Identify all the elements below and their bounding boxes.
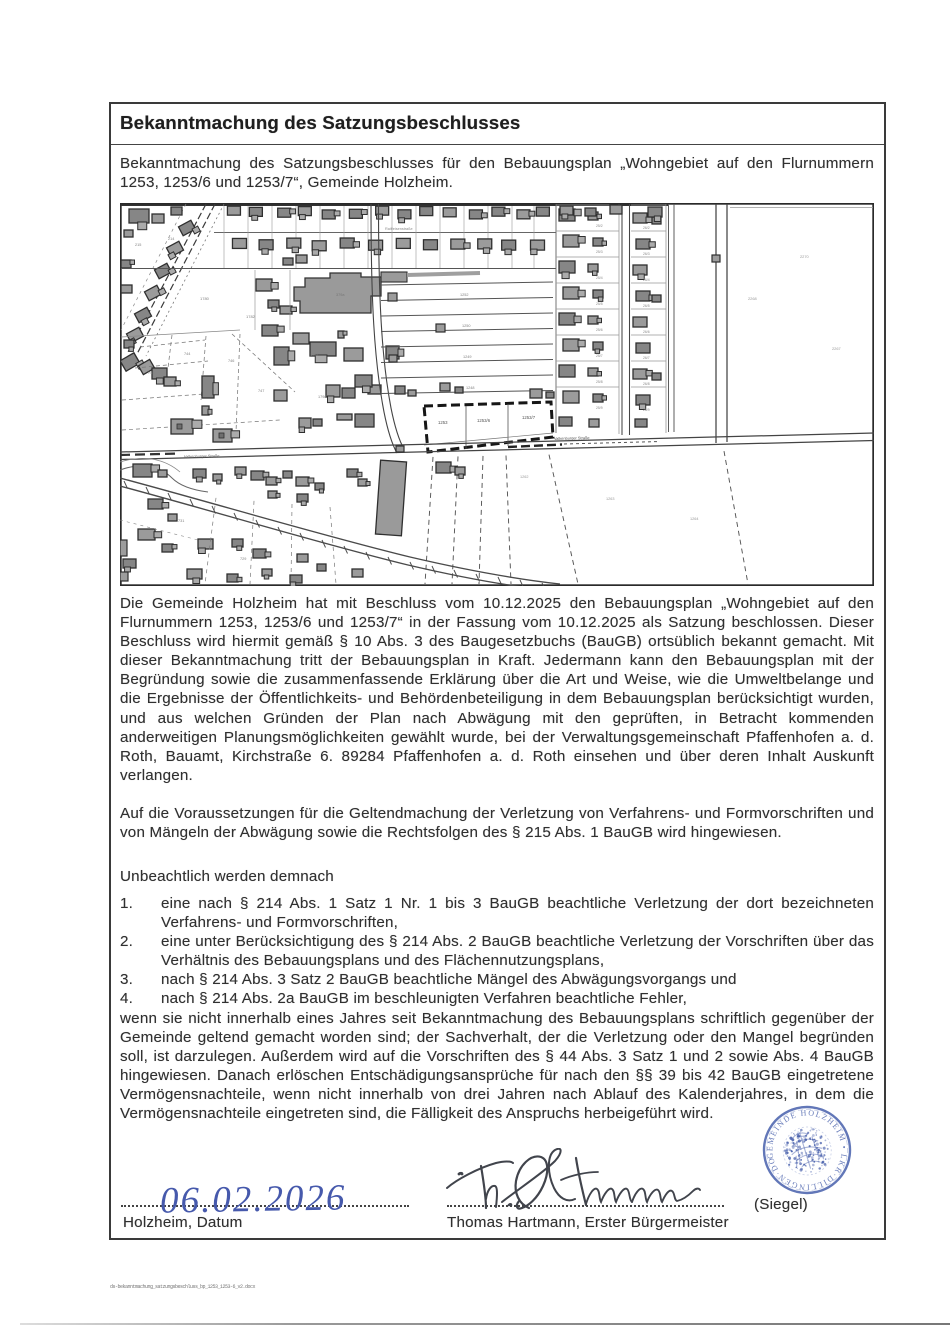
svg-text:745: 745 [148,371,154,375]
svg-text:746: 746 [228,359,234,363]
svg-text:1253/7: 1253/7 [522,415,536,420]
svg-text:26/8: 26/8 [643,382,650,386]
svg-text:26/2: 26/2 [643,226,650,230]
svg-text:25/5: 25/5 [596,302,603,306]
svg-text:214: 214 [168,237,174,241]
svg-text:25/3: 25/3 [596,250,603,254]
svg-text:1798: 1798 [318,395,326,399]
svg-text:1263: 1263 [606,497,614,501]
svg-text:747: 747 [258,389,264,393]
svg-text:744: 744 [184,352,190,356]
svg-text:1253: 1253 [438,420,448,425]
svg-text:26/7: 26/7 [643,356,650,360]
svg-text:Valkenburger Straße: Valkenburger Straße [184,453,220,459]
svg-text:1248: 1248 [466,386,474,390]
svg-text:729: 729 [240,557,246,561]
svg-text:25/2: 25/2 [596,224,603,228]
svg-text:2270: 2270 [800,254,809,259]
svg-text:26/5: 26/5 [643,304,650,308]
svg-text:1249: 1249 [463,355,471,359]
svg-text:2267: 2267 [832,346,841,351]
svg-text:26/3: 26/3 [643,252,650,256]
svg-text:1253/6: 1253/6 [477,418,491,423]
svg-text:1262: 1262 [520,475,528,479]
svg-text:25/4: 25/4 [596,276,603,280]
svg-text:1797: 1797 [310,353,318,357]
svg-text:26/4: 26/4 [643,278,650,282]
svg-text:25/8: 25/8 [596,380,603,384]
svg-text:1252: 1252 [460,293,468,297]
svg-text:26/9: 26/9 [643,408,650,412]
svg-text:215: 215 [135,243,141,247]
svg-text:1250: 1250 [462,324,470,328]
svg-text:25/6: 25/6 [596,328,603,332]
svg-text:731: 731 [178,519,184,523]
svg-text:1264: 1264 [690,517,698,521]
svg-text:25/9: 25/9 [596,406,603,410]
svg-text:26/6: 26/6 [643,330,650,334]
svg-text:1782: 1782 [246,314,256,319]
svg-text:25/7: 25/7 [596,354,603,358]
svg-text:379a: 379a [336,293,345,297]
svg-text:2268: 2268 [748,296,757,301]
svg-text:1780: 1780 [200,296,210,301]
svg-text:GEMEINDE HOLZHEIM • LKR·DILLIN: GEMEINDE HOLZHEIM • LKR·DILLINGEN·DONAU … [761,1104,853,1196]
svg-text:Valkenburger Straße: Valkenburger Straße [554,435,590,441]
svg-text:Raiffeisenstraße: Raiffeisenstraße [385,227,413,231]
